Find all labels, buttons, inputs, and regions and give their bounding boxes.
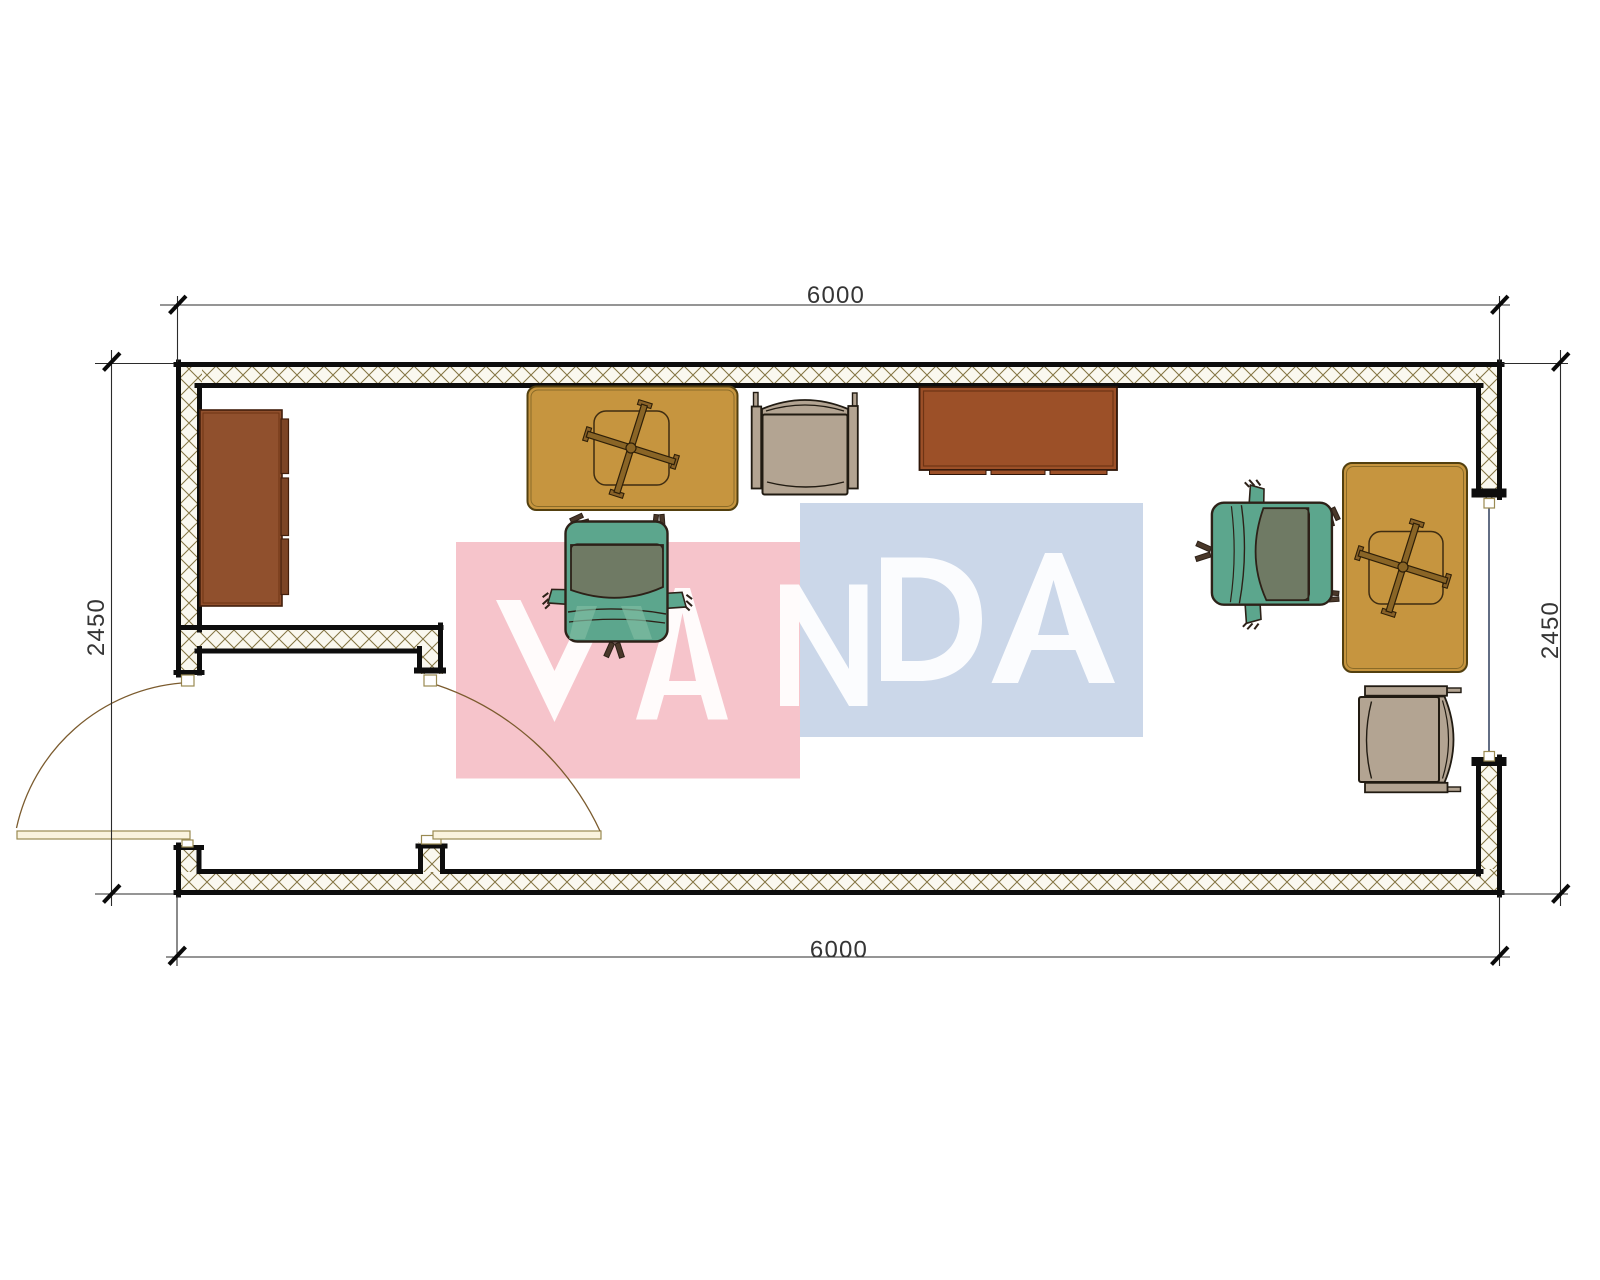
svg-text:6000: 6000 — [807, 282, 865, 309]
svg-text:2450: 2450 — [83, 598, 110, 656]
svg-text:2450: 2450 — [1537, 601, 1564, 659]
svg-text:6000: 6000 — [810, 937, 868, 964]
